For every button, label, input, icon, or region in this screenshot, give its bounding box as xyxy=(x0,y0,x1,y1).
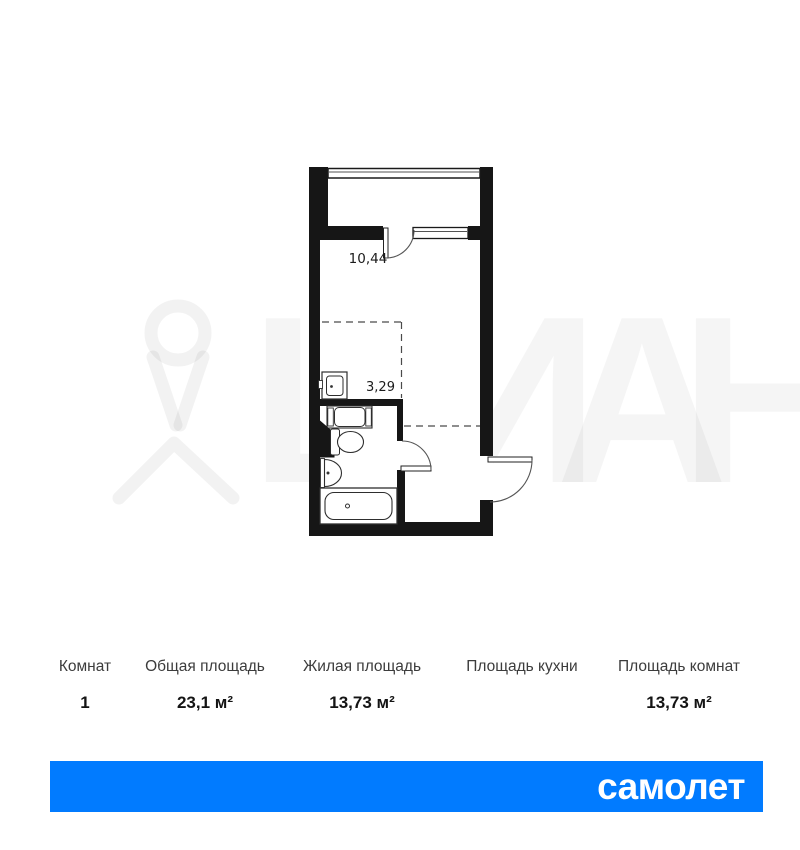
washing-machine-icon xyxy=(327,406,372,428)
column-header: Площадь комнат xyxy=(607,655,751,679)
column-value: 23,1 м² xyxy=(133,693,277,713)
table-column-kitchen-area: Площадь кухни xyxy=(450,655,594,735)
bathtub-icon xyxy=(320,488,397,524)
samolet-logo: самолет xyxy=(597,761,763,812)
cian-pin-icon xyxy=(112,296,244,516)
floor-plan: 10,44 3,29 xyxy=(240,150,560,570)
area-table: Комнат 1 Общая площадь 23,1 м² Жилая пло… xyxy=(0,655,800,735)
kitchen-sink-icon xyxy=(319,372,348,399)
column-header: Жилая площадь xyxy=(290,655,434,679)
column-header: Общая площадь xyxy=(133,655,277,679)
kitchen-area-label: 3,29 xyxy=(366,380,395,395)
table-column-living-area: Жилая площадь 13,73 м² xyxy=(290,655,434,735)
column-header: Комнат xyxy=(38,655,132,679)
column-value: 1 xyxy=(38,693,132,713)
window-icon xyxy=(413,228,468,239)
room-area-label: 10,44 xyxy=(349,251,388,267)
table-column-rooms-area: Площадь комнат 13,73 м² xyxy=(607,655,751,735)
column-value: 13,73 м² xyxy=(290,693,434,713)
watermark-letter: Н xyxy=(680,282,800,520)
column-value: 13,73 м² xyxy=(607,693,751,713)
samolet-banner: самолет xyxy=(50,761,763,812)
balcony-glazing-icon xyxy=(328,169,480,179)
listing-image: Ц И А Н xyxy=(0,0,800,850)
table-column-rooms: Комнат 1 xyxy=(38,655,132,735)
entrance-door-icon xyxy=(488,457,532,502)
table-column-total-area: Общая площадь 23,1 м² xyxy=(133,655,277,735)
column-header: Площадь кухни xyxy=(450,655,594,679)
